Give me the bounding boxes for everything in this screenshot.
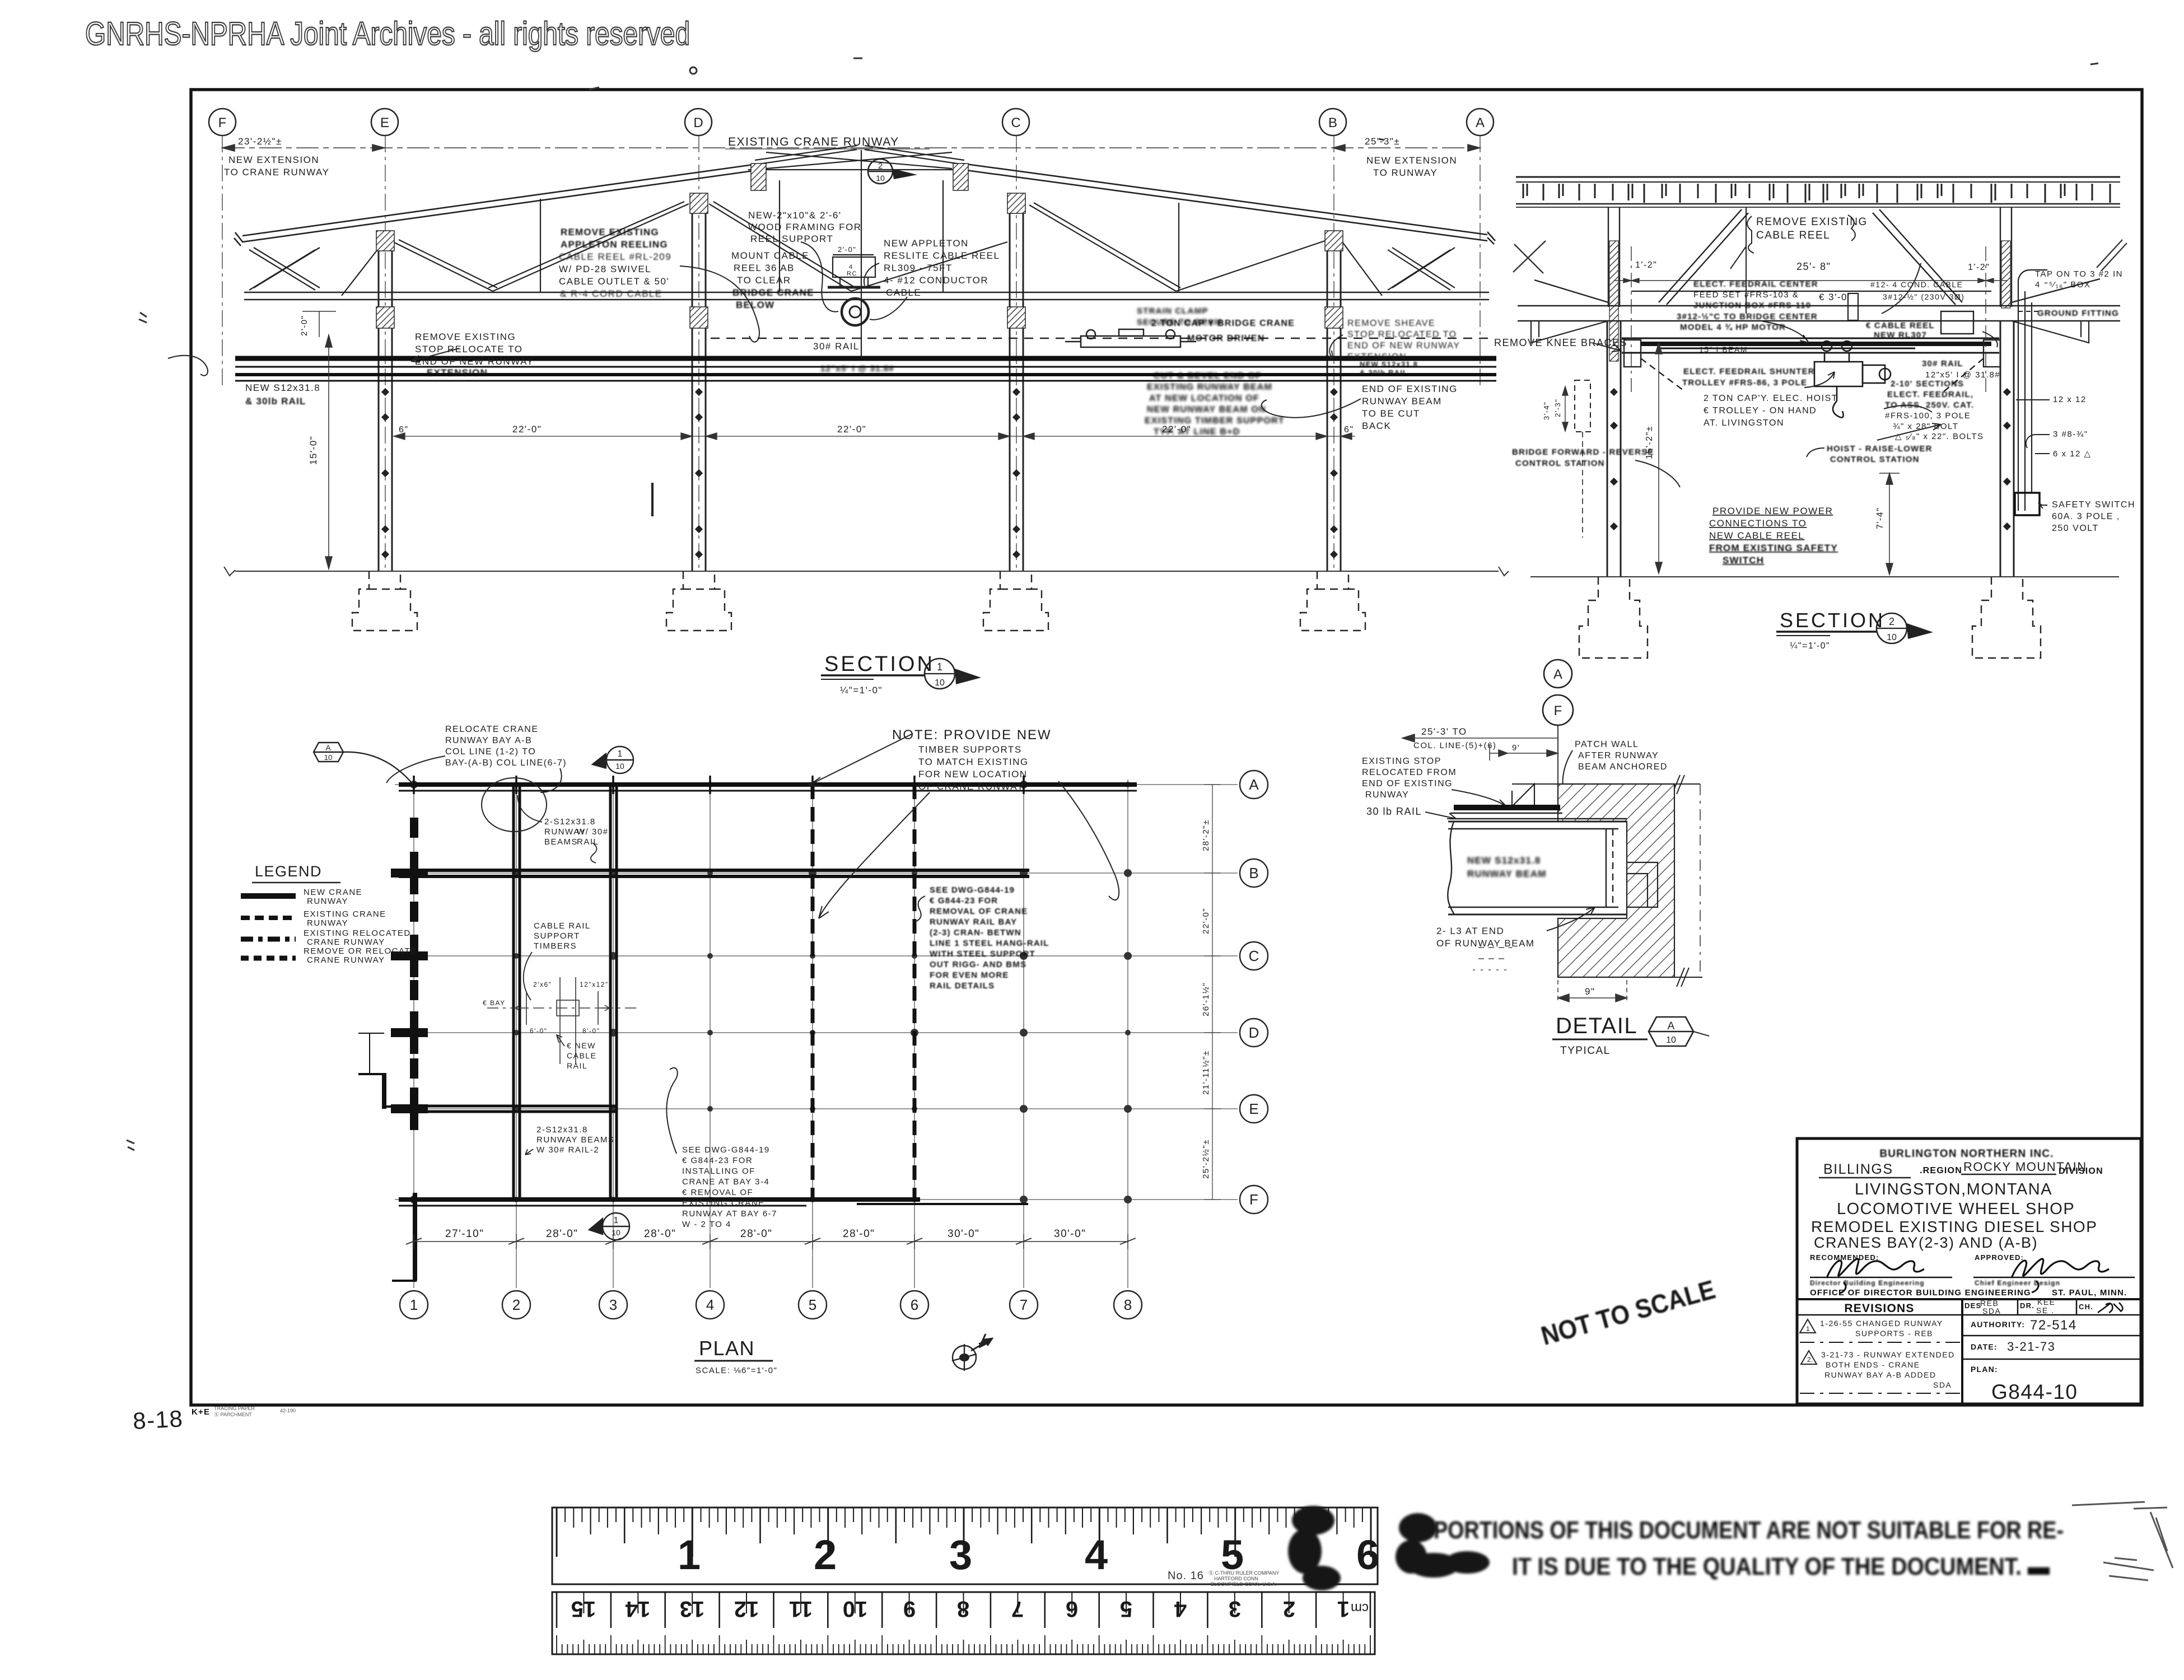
svg-text:ELECT. FEEDRAIL CENTER: ELECT. FEEDRAIL CENTER (1693, 279, 1818, 289)
svg-text:KEE: KEE (2037, 1298, 2056, 1306)
svg-text:2-10' SECTIONS: 2-10' SECTIONS (1891, 379, 1964, 389)
svg-text:30'-0": 30'-0" (1054, 1228, 1086, 1240)
svg-text:4: 4 (849, 264, 853, 270)
svg-text:3-21-73 - RUNWAY EXTENDED: 3-21-73 - RUNWAY EXTENDED (1821, 1350, 1955, 1359)
svg-text:2'x6": 2'x6" (533, 981, 552, 988)
svg-text:28'-0": 28'-0" (740, 1228, 772, 1240)
svg-text:2 TON CAP'Y BRIDGE CRANE: 2 TON CAP'Y BRIDGE CRANE (1151, 319, 1295, 328)
svg-text:PROVIDE NEW POWER: PROVIDE NEW POWER (1712, 506, 1833, 516)
svg-text:€ 3'-0': € 3'-0' (1819, 292, 1850, 302)
svg-text:2-S12x31.8: 2-S12x31.8 (536, 1125, 588, 1135)
svg-text:TO ASS. 250V. CAT.: TO ASS. 250V. CAT. (1885, 400, 1974, 410)
svg-text:10: 10 (1887, 633, 1897, 642)
svg-text:LIVINGSTON,MONTANA: LIVINGSTON,MONTANA (1855, 1180, 2052, 1198)
svg-text:B: B (1328, 115, 1337, 130)
svg-text:€ TROLLEY - ON HAND: € TROLLEY - ON HAND (1704, 406, 1817, 416)
svg-text:EXISTING CRANE: EXISTING CRANE (682, 1198, 765, 1208)
svg-text:1: 1 (618, 749, 623, 759)
svg-text:No. 16: No. 16 (1168, 1570, 1204, 1582)
svg-text:30# RAIL: 30# RAIL (813, 341, 860, 352)
svg-text:2: 2 (814, 1532, 837, 1578)
svg-text:TO RUNWAY: TO RUNWAY (1373, 167, 1438, 178)
svg-text:8: 8 (957, 1597, 969, 1621)
svg-text:EXISTING RELOCATED: EXISTING RELOCATED (304, 928, 411, 938)
svg-text:SUPPORTS - REB: SUPPORTS - REB (1855, 1329, 1933, 1338)
svg-text:C: C (1249, 948, 1259, 964)
svg-text:5: 5 (1120, 1597, 1132, 1621)
svg-text:CH.: CH. (2079, 1303, 2093, 1311)
svg-text:¾" x 28" BOLT: ¾" x 28" BOLT (1893, 422, 1958, 431)
svg-text:MODEL 4 ¾ HP MOTOR: MODEL 4 ¾ HP MOTOR (1680, 323, 1786, 332)
svg-text:E: E (380, 115, 389, 130)
svg-text:E: E (1249, 1100, 1258, 1117)
svg-text:RUNWAY BAY A-B: RUNWAY BAY A-B (445, 736, 532, 745)
svg-text:22'-0": 22'-0" (837, 424, 866, 435)
svg-text:NEW-2"x10"& 2'-6': NEW-2"x10"& 2'-6' (748, 210, 842, 221)
svg-text:REMODEL EXISTING DIESEL SHOP: REMODEL EXISTING DIESEL SHOP (1811, 1218, 2097, 1235)
svg-text:NEW RL307: NEW RL307 (1874, 330, 1927, 340)
svg-text:HOIST - RAISE-LOWER: HOIST - RAISE-LOWER (1827, 444, 1933, 454)
svg-text:REMOVE EXISTING: REMOVE EXISTING (561, 227, 659, 237)
svg-text:DETAIL: DETAIL (1556, 1014, 1637, 1038)
svg-text:EXISTING STOP: EXISTING STOP (1362, 757, 1441, 766)
svg-text:7'-4": 7'-4" (1875, 507, 1885, 529)
svg-text:9': 9' (1512, 743, 1520, 753)
svg-text:#FRS-100, 3 POLE: #FRS-100, 3 POLE (1885, 411, 1971, 421)
svg-text:11: 11 (789, 1597, 813, 1621)
svg-text:F: F (218, 115, 227, 130)
svg-text:RUNWAY AT BAY 6-7: RUNWAY AT BAY 6-7 (682, 1209, 777, 1219)
svg-text:DIVISION: DIVISION (2059, 1166, 2103, 1176)
svg-text:NEW RUNWAY BEAM ON: NEW RUNWAY BEAM ON (1147, 405, 1266, 414)
svg-text:C: C (1011, 115, 1020, 130)
svg-text:NEW S12x31.8: NEW S12x31.8 (245, 382, 320, 393)
svg-text:BAY-(A-B) COL LINE(6-7): BAY-(A-B) COL LINE(6-7) (445, 758, 567, 768)
svg-text:6 x 12 △: 6 x 12 △ (2053, 449, 2092, 459)
svg-text:FROM EXISTING SAFETY: FROM EXISTING SAFETY (1709, 543, 1838, 553)
svg-text:8: 8 (1124, 1296, 1132, 1313)
svg-text:A: A (1553, 667, 1562, 682)
svg-text:28'-0": 28'-0" (546, 1228, 578, 1240)
svg-text:RC: RC (847, 270, 857, 277)
svg-text:NEW S12x31.8: NEW S12x31.8 (1360, 360, 1418, 368)
svg-text:6: 6 (911, 1296, 918, 1313)
svg-text:Chief Engineer Design: Chief Engineer Design (1975, 1279, 2060, 1287)
svg-text:NEW S12x31.8: NEW S12x31.8 (1467, 855, 1541, 866)
svg-text:A: A (1476, 115, 1485, 130)
svg-text:DES: DES (1964, 1301, 1981, 1310)
svg-text:AT. LIVINGSTON: AT. LIVINGSTON (1704, 418, 1784, 428)
svg-text:REVISIONS: REVISIONS (1844, 1302, 1914, 1315)
svg-text:€ REMOVAL OF: € REMOVAL OF (682, 1188, 753, 1197)
svg-text:RUNWAY BEAM: RUNWAY BEAM (1467, 869, 1547, 879)
svg-text:APPLETON REELING: APPLETON REELING (561, 239, 668, 250)
svg-text:W 30# RAIL-2: W 30# RAIL-2 (536, 1145, 599, 1155)
svg-text:6": 6" (399, 425, 409, 435)
svg-text:COL. LINE-(5)+(6): COL. LINE-(5)+(6) (1413, 741, 1496, 750)
svg-text:CRANE RUNWAY: CRANE RUNWAY (307, 955, 385, 965)
svg-text:SUPPORT: SUPPORT (534, 931, 580, 941)
svg-text:CABLE RAIL: CABLE RAIL (534, 921, 591, 931)
svg-text:NEW EXTENSION: NEW EXTENSION (1366, 155, 1457, 166)
svg-text:HARTFORD CONN: HARTFORD CONN (1214, 1576, 1258, 1581)
svg-text:cm: cm (1351, 1600, 1369, 1616)
svg-text:REMOVE EXISTING: REMOVE EXISTING (1756, 216, 1868, 228)
svg-text:CABLE: CABLE (567, 1051, 596, 1060)
svg-text:.REGION: .REGION (1920, 1166, 1962, 1175)
svg-text:6: 6 (1066, 1597, 1078, 1621)
svg-text:10: 10 (612, 1228, 620, 1237)
svg-text:STOP RELOCATE TO: STOP RELOCATE TO (415, 344, 522, 354)
svg-text:RUNWAY BAY A-B ADDED: RUNWAY BAY A-B ADDED (1824, 1370, 1936, 1379)
svg-text:REMOVE SHEAVE: REMOVE SHEAVE (1347, 319, 1435, 328)
svg-text:GROUND FITTING: GROUND FITTING (2037, 309, 2119, 318)
svg-text:28'-0": 28'-0" (644, 1228, 676, 1240)
svg-text:2- L3 AT END: 2- L3 AT END (1436, 926, 1504, 936)
svg-text:€ G844-23 FOR: € G844-23 FOR (930, 896, 998, 906)
svg-text:PLAN: PLAN (699, 1337, 755, 1360)
svg-text:RELOCATE CRANE: RELOCATE CRANE (445, 725, 539, 734)
svg-text:SDA: SDA (1982, 1306, 2001, 1315)
svg-text:Ⓢ C-THRU RULER COMPANY: Ⓢ C-THRU RULER COMPANY (1208, 1570, 1279, 1576)
svg-text:6: 6 (1356, 1532, 1379, 1578)
svg-text:2 TON CAP'Y. ELEC. HOIST: 2 TON CAP'Y. ELEC. HOIST (1704, 394, 1838, 403)
svg-text:TRACING PAPER: TRACING PAPER (214, 1406, 255, 1411)
svg-text:27'-10": 27'-10" (445, 1228, 484, 1240)
svg-text:2: 2 (512, 1296, 520, 1313)
svg-text:€ NEW: € NEW (567, 1041, 596, 1050)
svg-text:9: 9 (903, 1597, 916, 1621)
svg-text:TYP. AT LINE B+D: TYP. AT LINE B+D (1154, 427, 1240, 437)
svg-text:26'-1½": 26'-1½" (1201, 982, 1211, 1016)
svg-text:4: 4 (1085, 1532, 1108, 1578)
svg-text:LOCOMOTIVE WHEEL SHOP: LOCOMOTIVE WHEEL SHOP (1837, 1200, 2075, 1218)
svg-text:CABLE REEL #RL-209: CABLE REEL #RL-209 (559, 251, 671, 262)
svg-text:EXISTING TIMBER SUPPORT: EXISTING TIMBER SUPPORT (1145, 416, 1285, 426)
svg-text:1: 1 (614, 1216, 619, 1225)
svg-text:2'-0": 2'-0" (300, 315, 309, 336)
svg-text:OUT RIGG- AND BMS: OUT RIGG- AND BMS (930, 960, 1026, 969)
svg-text:4: 4 (706, 1296, 714, 1313)
svg-text:REMOVE EXISTING: REMOVE EXISTING (415, 332, 516, 342)
svg-text:42-190: 42-190 (280, 1408, 296, 1413)
svg-text:BOTH ENDS - CRANE: BOTH ENDS - CRANE (1826, 1360, 1920, 1369)
svg-text:10: 10 (1666, 1035, 1676, 1045)
svg-text:8-18: 8-18 (132, 1405, 184, 1434)
svg-text:END OF EXISTING: END OF EXISTING (1362, 779, 1453, 788)
svg-text:SCALE: ⅛6"=1'-0": SCALE: ⅛6"=1'-0" (696, 1366, 777, 1375)
svg-text:1: 1 (1337, 1597, 1350, 1621)
svg-text:7: 7 (1020, 1296, 1028, 1313)
svg-text:1-26-55 CHANGED RUNWAY: 1-26-55 CHANGED RUNWAY (1820, 1319, 1943, 1328)
svg-text:MOUNT CABLE: MOUNT CABLE (731, 250, 809, 261)
svg-text:72-514: 72-514 (2030, 1318, 2077, 1333)
svg-text:6'-0": 6'-0" (530, 1027, 547, 1035)
svg-text:2: 2 (878, 161, 883, 171)
svg-text:1: 1 (1806, 1325, 1810, 1333)
svg-text:13: 13 (680, 1597, 705, 1621)
svg-text:7: 7 (1011, 1597, 1024, 1621)
svg-text:1'-2": 1'-2" (1635, 260, 1657, 270)
svg-text:LEGEND: LEGEND (255, 863, 322, 880)
svg-text:10: 10 (843, 1597, 868, 1621)
svg-text:RUNWAY: RUNWAY (1365, 790, 1409, 800)
svg-text:NEW EXTENSION: NEW EXTENSION (228, 155, 319, 165)
svg-text:PATCH WALL: PATCH WALL (1575, 740, 1639, 749)
svg-text:¼"=1'-0": ¼"=1'-0" (1790, 641, 1830, 651)
svg-text:5: 5 (809, 1296, 816, 1313)
svg-text:CABLE REEL: CABLE REEL (1756, 230, 1830, 241)
svg-text:2'-3": 2'-3" (1553, 399, 1562, 417)
svg-text:SWITCH: SWITCH (1723, 555, 1764, 566)
svg-text:W - 2 TO 4: W - 2 TO 4 (682, 1220, 731, 1229)
svg-text:TAP ON TO 3 #2 IN: TAP ON TO 3 #2 IN (2035, 269, 2123, 279)
svg-text:CABLE: CABLE (886, 287, 921, 298)
svg-text:15: 15 (571, 1597, 596, 1621)
svg-text:RESLITE CABLE REEL: RESLITE CABLE REEL (884, 250, 1000, 261)
svg-text:NEW CRANE: NEW CRANE (304, 888, 362, 897)
svg-text:30# RAIL: 30# RAIL (1922, 359, 1963, 368)
svg-text:TYPICAL: TYPICAL (1560, 1045, 1611, 1057)
svg-text:CONTROL STATION: CONTROL STATION (1515, 459, 1605, 468)
svg-text:NEW CABLE REEL: NEW CABLE REEL (1709, 530, 1804, 541)
svg-text:14: 14 (625, 1597, 650, 1621)
svg-text:22'-0": 22'-0" (1201, 908, 1211, 934)
svg-text:F: F (1554, 703, 1562, 718)
svg-text:12"x5' I @ 31.8#: 12"x5' I @ 31.8# (1925, 370, 2000, 380)
svg-text:EXISTING RUNWAY BEAM: EXISTING RUNWAY BEAM (1147, 382, 1272, 392)
svg-text:21'-11½"±: 21'-11½"± (1201, 1050, 1211, 1095)
svg-text:END OF NEW RUNWAY: END OF NEW RUNWAY (1347, 341, 1460, 351)
svg-text:TO CLEAR: TO CLEAR (737, 275, 791, 286)
svg-text:EXISTING CRANE: EXISTING CRANE (304, 909, 386, 919)
svg-text:2'-0": 2'-0" (838, 245, 856, 254)
svg-text:MOTOR DRIVEN: MOTOR DRIVEN (1187, 334, 1265, 343)
svg-text:D: D (1249, 1024, 1259, 1041)
svg-text:A: A (1249, 776, 1259, 793)
svg-text:& R-4 CORD CABLE: & R-4 CORD CABLE (560, 288, 662, 299)
svg-text:25'-2½"±: 25'-2½"± (1201, 1139, 1211, 1179)
svg-text:K+E: K+E (192, 1407, 210, 1417)
svg-text:(2-3) CRAN- BETWN: (2-3) CRAN- BETWN (930, 928, 1021, 937)
svg-text:2-S12x31.8: 2-S12x31.8 (544, 817, 596, 827)
svg-text:PLAN:: PLAN: (1971, 1365, 1998, 1374)
svg-text:CONTROL STATION: CONTROL STATION (1830, 455, 1920, 464)
svg-text:3: 3 (1229, 1597, 1241, 1621)
svg-text:RUNWAY: RUNWAY (307, 897, 348, 906)
svg-text:TO CRANE RUNWAY: TO CRANE RUNWAY (224, 167, 329, 178)
svg-text:STRAIN CLAMP: STRAIN CLAMP (1137, 306, 1208, 316)
svg-text:END OF NEW RUNWAY: END OF NEW RUNWAY (415, 356, 534, 367)
svg-text:8'-0": 8'-0" (582, 1027, 600, 1035)
svg-text:WITH STEEL SUPPORT: WITH STEEL SUPPORT (930, 949, 1035, 959)
svg-text:12: 12 (734, 1597, 759, 1621)
svg-text:LINE 1 STEEL HANG-RAIL: LINE 1 STEEL HANG-RAIL (930, 939, 1049, 948)
svg-text:REMOVAL OF CRANE: REMOVAL OF CRANE (930, 907, 1028, 916)
svg-text:PORTIONS OF THIS DOCUMENT ARE: PORTIONS OF THIS DOCUMENT ARE NOT SUITAB… (1434, 1516, 2064, 1544)
svg-text:& 30lb RAIL: & 30lb RAIL (1360, 368, 1408, 377)
svg-text:1: 1 (678, 1532, 701, 1578)
svg-text:3: 3 (609, 1296, 617, 1313)
svg-text:AFTER RUNWAY: AFTER RUNWAY (1578, 751, 1659, 760)
svg-text:3#12-½" (230V 3Ø): 3#12-½" (230V 3Ø) (1883, 292, 1964, 301)
svg-text:D: D (693, 115, 703, 130)
svg-text:IT IS DUE TO THE QUALITY OF TH: IT IS DUE TO THE QUALITY OF THE DOCUMENT… (1512, 1553, 2050, 1580)
svg-text:10: 10 (615, 762, 624, 771)
svg-text:3 #8-¾": 3 #8-¾" (2053, 430, 2088, 439)
svg-text:3: 3 (949, 1532, 972, 1578)
svg-text:RUNWAY RAIL BAY: RUNWAY RAIL BAY (930, 917, 1017, 927)
svg-text:APPROVED:: APPROVED: (1975, 1253, 2024, 1262)
svg-text:CABLE OUTLET & 50': CABLE OUTLET & 50' (559, 276, 669, 287)
svg-text:TIMBERS: TIMBERS (534, 941, 577, 951)
svg-text:25'-3' TO: 25'-3' TO (1421, 726, 1467, 737)
svg-text:BURLINGTON NORTHERN INC.: BURLINGTON NORTHERN INC. (1879, 1148, 2054, 1160)
svg-text:REEL SUPPORT: REEL SUPPORT (750, 234, 833, 244)
svg-text:€ G844-23 FOR: € G844-23 FOR (682, 1156, 753, 1165)
svg-text:BELOW: BELOW (736, 300, 774, 310)
svg-text:SAFETY SWITCH: SAFETY SWITCH (2052, 500, 2135, 510)
svg-text:BEAMS: BEAMS (544, 837, 578, 847)
svg-text:1: 1 (937, 661, 942, 673)
svg-text:NOTE: PROVIDE NEW: NOTE: PROVIDE NEW (892, 727, 1052, 743)
svg-text:60A. 3 POLE ,: 60A. 3 POLE , (2052, 512, 2120, 521)
svg-text:TO BE CUT: TO BE CUT (1362, 408, 1420, 419)
svg-text:JUNCTION BOX #FRS-110: JUNCTION BOX #FRS-110 (1693, 301, 1811, 310)
svg-text:REEL 36 AB: REEL 36 AB (734, 263, 795, 273)
svg-text:RECOMMENDED:: RECOMMENDED: (1810, 1253, 1879, 1262)
svg-text:OF CRANE RUNWAY: OF CRANE RUNWAY (918, 781, 1024, 792)
svg-text:RUNWAY BEAM: RUNWAY BEAM (1362, 396, 1442, 407)
svg-text:TROLLEY #FRS-86, 3 POLE: TROLLEY #FRS-86, 3 POLE (1682, 378, 1807, 388)
svg-text:2.: 2. (1807, 1356, 1813, 1364)
svg-text:CRANE AT BAY 3-4: CRANE AT BAY 3-4 (682, 1177, 769, 1187)
svg-text:OF RUNWAY BEAM: OF RUNWAY BEAM (1436, 938, 1535, 949)
svg-text:15" I BEAM: 15" I BEAM (1699, 345, 1748, 354)
svg-text:10: 10 (876, 174, 885, 183)
svg-text:BLOOMFIELD CONN. U.S.A.: BLOOMFIELD CONN. U.S.A. (1211, 1581, 1277, 1587)
svg-text:€ BAY: € BAY (483, 999, 506, 1007)
svg-text:RAIL DETAILS: RAIL DETAILS (930, 981, 995, 991)
svg-text:ELECT. FEEDRAIL,: ELECT. FEEDRAIL, (1887, 390, 1973, 399)
svg-text:SECTION: SECTION (1780, 609, 1885, 632)
svg-text:28'-2"±: 28'-2"± (1201, 819, 1211, 851)
svg-text:30'-0": 30'-0" (948, 1228, 979, 1240)
svg-text:25'-3"±: 25'-3"± (1365, 136, 1400, 147)
svg-text:G844-10: G844-10 (1991, 1380, 2078, 1403)
svg-text:AT NEW LOCATION OF: AT NEW LOCATION OF (1149, 394, 1259, 403)
svg-text:30 lb RAIL: 30 lb RAIL (1366, 806, 1422, 817)
svg-text:A: A (325, 743, 331, 752)
svg-text:CUT & BEVEL END OF: CUT & BEVEL END OF (1154, 371, 1262, 381)
svg-text:BEAM ANCHORED: BEAM ANCHORED (1578, 762, 1668, 772)
svg-text:ST. PAUL, MINN.: ST. PAUL, MINN. (2052, 1288, 2127, 1298)
svg-text:1: 1 (410, 1296, 418, 1313)
svg-text:END OF EXISTING: END OF EXISTING (1362, 384, 1458, 394)
svg-text:FOR EVEN MORE: FOR EVEN MORE (930, 970, 1009, 980)
svg-text:2: 2 (1889, 616, 1894, 627)
svg-text:6": 6" (1344, 425, 1354, 435)
svg-text:BACK: BACK (1362, 421, 1391, 431)
svg-text:250 VOLT: 250 VOLT (2052, 524, 2099, 533)
svg-text:¼"=1'-0": ¼"=1'-0" (840, 685, 883, 696)
svg-text:ELECT. FEEDRAIL SHUNTER: ELECT. FEEDRAIL SHUNTER (1683, 367, 1815, 376)
svg-text:CONNECTIONS TO: CONNECTIONS TO (1709, 518, 1807, 529)
svg-text:CRANES BAY(2-3) AND (A-B): CRANES BAY(2-3) AND (A-B) (1814, 1234, 2038, 1251)
svg-text:F: F (1249, 1191, 1258, 1208)
svg-text:12"x5' I @ 31.8#: 12"x5' I @ 31.8# (820, 364, 894, 374)
svg-text:SEE DWG-G844-19: SEE DWG-G844-19 (682, 1145, 770, 1155)
svg-text:DATE:: DATE: (1971, 1342, 1998, 1351)
svg-text:2: 2 (1283, 1597, 1295, 1621)
svg-text:WOOD FRAMING FOR: WOOD FRAMING FOR (748, 222, 861, 232)
svg-text:TIMBER SUPPORTS: TIMBER SUPPORTS (918, 744, 1022, 755)
svg-text:STOP RELOCATED TO: STOP RELOCATED TO (1347, 330, 1457, 339)
svg-text:15'-0": 15'-0" (308, 436, 319, 465)
svg-text:25'- 8": 25'- 8" (1796, 261, 1831, 272)
svg-text:A: A (1668, 1020, 1675, 1032)
svg-text:SEE DWG-G844-19: SEE DWG-G844-19 (930, 885, 1015, 895)
svg-text:DR.: DR. (2020, 1301, 2034, 1310)
svg-text:B: B (1249, 865, 1258, 881)
svg-text:NEW APPLETON: NEW APPLETON (884, 238, 969, 249)
svg-text:23'-2½"±: 23'-2½"± (238, 136, 282, 147)
svg-text:1'-2": 1'-2" (1968, 263, 1990, 272)
svg-text:RL309 - 75FT: RL309 - 75FT (884, 263, 953, 273)
svg-text:W/ PD-28 SWIVEL: W/ PD-28 SWIVEL (559, 264, 651, 274)
svg-text:RAIL: RAIL (567, 1061, 587, 1070)
svg-text:AUTHORITY:: AUTHORITY: (1971, 1320, 2025, 1329)
svg-text:INSTALLING OF: INSTALLING OF (682, 1166, 755, 1176)
svg-text:& 30lb RAIL: & 30lb RAIL (245, 396, 306, 407)
svg-text:3-21-73: 3-21-73 (2007, 1340, 2055, 1354)
svg-text:BILLINGS: BILLINGS (1823, 1161, 1893, 1177)
svg-text:#12- 4 COND. CABLE: #12- 4 COND. CABLE (1870, 280, 1963, 289)
svg-text:GNRHS-NPRHA Joint Archives - a: GNRHS-NPRHA Joint Archives - all rights … (85, 16, 690, 52)
svg-text:EXTENSION: EXTENSION (427, 367, 488, 378)
svg-text:3'-4": 3'-4" (1542, 402, 1551, 420)
svg-text:10: 10 (324, 753, 332, 762)
svg-text:12 x 12: 12 x 12 (2053, 395, 2087, 404)
svg-text:SECTION: SECTION (824, 652, 935, 676)
svg-text:REMOVE OR RELOCATE: REMOVE OR RELOCATE (304, 946, 417, 956)
svg-text:SDA: SDA (1933, 1380, 1952, 1389)
svg-text:BRIDGE FORWARD - REVERSE: BRIDGE FORWARD - REVERSE (1512, 447, 1654, 457)
svg-text:22'-0": 22'-0" (512, 424, 542, 435)
svg-text:Director Building Engineerin: Director Building Engineering (1810, 1279, 1925, 1287)
svg-text:RUNWAY: RUNWAY (307, 918, 348, 928)
svg-text:TO MATCH EXISTING: TO MATCH EXISTING (918, 757, 1029, 767)
svg-text:3#12-½"C TO BRIDGE CENTER: 3#12-½"C TO BRIDGE CENTER (1677, 312, 1818, 321)
svg-text:10: 10 (935, 678, 945, 688)
svg-text:12"x12": 12"x12" (580, 981, 609, 988)
svg-text:4- #12 CONDUCTOR: 4- #12 CONDUCTOR (884, 275, 988, 286)
svg-text:4: 4 (1174, 1597, 1187, 1621)
svg-text:€ CABLE REEL: € CABLE REEL (1866, 321, 1935, 330)
svg-text:COL LINE (1-2) TO: COL LINE (1-2) TO (445, 747, 536, 757)
svg-text:4 ⁼⁵⁄₁₆" BOX: 4 ⁼⁵⁄₁₆" BOX (2035, 280, 2090, 290)
svg-text:△ ₅⁄₈" x 22". BOLTS: △ ₅⁄₈" x 22". BOLTS (1895, 432, 1984, 441)
svg-text:9": 9" (1585, 986, 1595, 997)
svg-text:BRIDGE CRANE: BRIDGE CRANE (732, 287, 814, 298)
svg-text:FOR NEW LOCATION: FOR NEW LOCATION (918, 769, 1028, 780)
svg-text:CRANE RUNWAY: CRANE RUNWAY (307, 937, 385, 947)
svg-text:W/ 30#: W/ 30# (577, 827, 609, 837)
svg-text:RUNWAY BEAMS: RUNWAY BEAMS (536, 1135, 614, 1145)
svg-text:RELOCATED FROM: RELOCATED FROM (1362, 768, 1457, 777)
svg-text:OFFICE OF DIRECTOR BUILDING EN: OFFICE OF DIRECTOR BUILDING ENGINEERING (1810, 1288, 2031, 1298)
svg-text:28'-0": 28'-0" (843, 1228, 875, 1240)
